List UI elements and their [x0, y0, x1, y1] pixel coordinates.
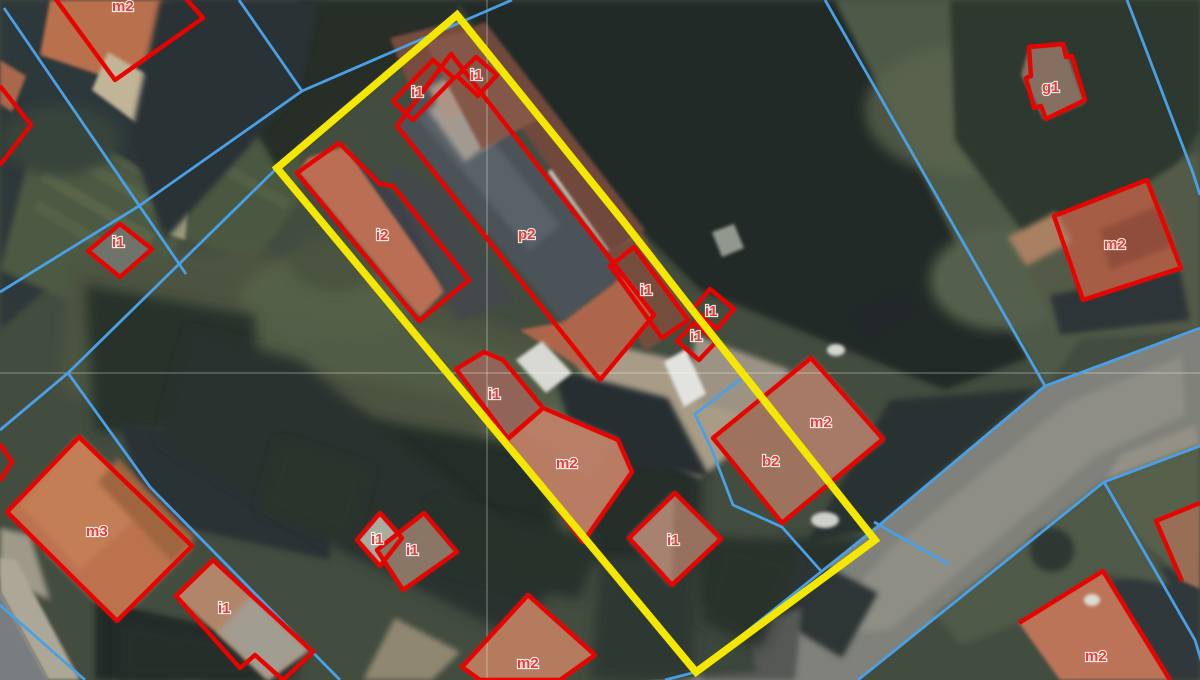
- svg-text:m2: m2: [556, 455, 578, 472]
- svg-text:g1: g1: [1042, 79, 1060, 96]
- svg-text:i2: i2: [376, 227, 389, 244]
- svg-text:i1: i1: [690, 328, 703, 345]
- svg-text:p2: p2: [518, 226, 536, 243]
- svg-text:i1: i1: [371, 531, 384, 548]
- svg-text:i1: i1: [488, 386, 501, 403]
- svg-text:i1: i1: [705, 303, 718, 320]
- svg-text:m2: m2: [517, 655, 539, 672]
- svg-text:i1: i1: [218, 600, 231, 617]
- svg-text:m2: m2: [1104, 236, 1126, 253]
- svg-text:i1: i1: [411, 84, 424, 101]
- svg-text:b2: b2: [762, 453, 780, 470]
- svg-text:i1: i1: [406, 542, 419, 559]
- svg-text:m2: m2: [1085, 648, 1107, 665]
- svg-text:m2: m2: [112, 0, 134, 15]
- svg-text:i1: i1: [640, 282, 653, 299]
- svg-text:m3: m3: [86, 523, 108, 540]
- svg-text:i1: i1: [667, 532, 680, 549]
- svg-text:m2: m2: [810, 414, 832, 431]
- svg-text:i1: i1: [470, 67, 483, 84]
- svg-text:i1: i1: [112, 234, 125, 251]
